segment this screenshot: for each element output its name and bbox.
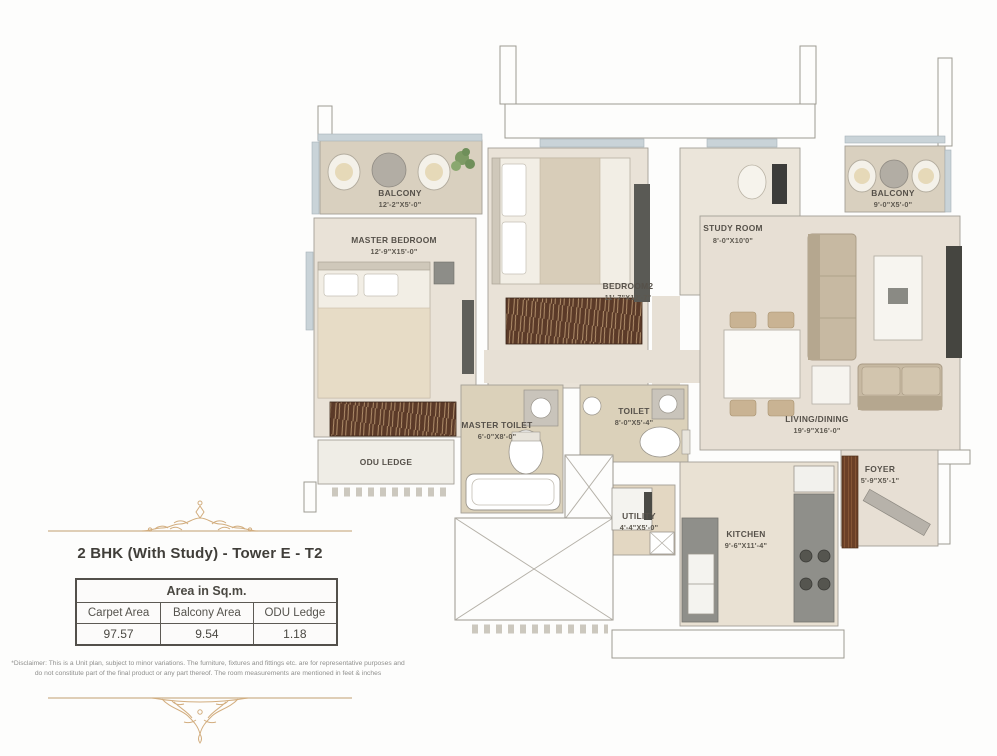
room-label: UTILITY (622, 511, 656, 521)
room-dims: 8'-0"X10'0" (713, 236, 753, 245)
pillow (324, 274, 358, 296)
room-label: ODU LEDGE (360, 457, 413, 467)
filigree-ornament-bottom (0, 690, 400, 746)
washbasin (583, 397, 601, 415)
sofa-back (858, 396, 942, 410)
window (845, 136, 945, 143)
room-label: FOYER (865, 464, 895, 474)
room-label: MASTER BEDROOM (351, 235, 437, 245)
nightstand (434, 262, 454, 284)
room-dims: 12'-2"X5'-0" (379, 200, 422, 209)
area-table-header: Area in Sq.m. (76, 579, 337, 603)
chair (738, 165, 766, 199)
table-decor (888, 288, 908, 304)
chair-seat (854, 168, 870, 184)
bed-headboard (492, 158, 500, 284)
area-table-value: 1.18 (253, 624, 337, 646)
bedroom2-furniture (492, 158, 650, 344)
dining-chair (730, 400, 756, 416)
room-dims: 11'-7"X12'-7" (605, 293, 652, 302)
floorplan-page: BALCONY 12'-2"X5'-0" MASTER BEDROOM 12'-… (0, 0, 997, 756)
wall-stub (500, 46, 516, 104)
dining-table (724, 330, 800, 398)
room-label: BEDROOM2 (603, 281, 654, 291)
filigree-ornament-top (0, 492, 400, 536)
wall-stub (800, 46, 816, 104)
pillow (502, 222, 526, 274)
room-dims: 4'-4"X5'-0" (620, 523, 659, 532)
disclaimer-text: *Disclaimer: This is a Unit plan, subjec… (8, 659, 408, 678)
corridor (652, 296, 680, 388)
wardrobe (506, 298, 642, 344)
room-label: LIVING/DINING (785, 414, 848, 424)
dining-chair (768, 312, 794, 328)
chair-seat (335, 163, 353, 181)
entry-landing (612, 630, 844, 658)
room-dims: 9'-0"X5'-0" (874, 200, 913, 209)
round-table (880, 160, 908, 188)
window (540, 139, 644, 147)
duct-band (505, 104, 815, 138)
pillow (502, 164, 526, 216)
room-dims: 6'-0"X8'-0" (478, 432, 517, 441)
area-table-col: ODU Ledge (253, 603, 337, 624)
room-label: STUDY ROOM (703, 223, 763, 233)
tv-unit (946, 246, 962, 358)
room-dims: 12'-9"X15'-0" (370, 247, 417, 256)
dining-chair (730, 312, 756, 328)
sofa-cushion (862, 367, 900, 395)
round-table (372, 153, 406, 187)
sofa-back (808, 234, 820, 360)
kitchen-sink (794, 466, 834, 492)
end-table (812, 366, 850, 404)
window (312, 142, 319, 214)
room-dims: 9'-6"X11'-4" (725, 541, 767, 550)
room-dims: 5'-9"X5'-1" (861, 476, 900, 485)
page-title: 2 BHK (With Study) - Tower E - T2 (0, 545, 400, 562)
room-label: TOILET (618, 406, 650, 416)
chair-seat (918, 168, 934, 184)
pillow (364, 274, 398, 296)
area-table-value: 97.57 (76, 624, 161, 646)
room-label: BALCONY (871, 188, 915, 198)
room-label: BALCONY (378, 188, 422, 198)
window (306, 252, 313, 330)
window (945, 150, 951, 212)
area-table-value: 9.54 (161, 624, 254, 646)
room-dims: 8'-0"X5'-4" (615, 418, 654, 427)
area-table: Area in Sq.m. Carpet Area Balcony Area O… (75, 578, 338, 646)
foyer-wardrobe (842, 456, 858, 548)
wc (640, 427, 680, 457)
window (318, 134, 482, 141)
washbasin (531, 398, 551, 418)
bed-blanket (540, 158, 600, 284)
window (707, 139, 777, 147)
area-table-col: Balcony Area (161, 603, 254, 624)
wall-stub (938, 58, 952, 146)
wardrobe (330, 402, 456, 436)
dresser (462, 300, 474, 374)
washbasin (659, 395, 677, 413)
chair-seat (425, 163, 443, 181)
wc-tank (682, 430, 690, 454)
area-table-col: Carpet Area (76, 603, 161, 624)
room-dims: 19'-9"X16'-0" (793, 426, 840, 435)
sofa-cushion (902, 367, 940, 395)
bed-headboard (318, 262, 430, 270)
room-label: MASTER TOILET (461, 420, 533, 430)
room-label: KITCHEN (726, 529, 765, 539)
bed-blanket (318, 308, 430, 398)
study-desk (772, 164, 787, 204)
